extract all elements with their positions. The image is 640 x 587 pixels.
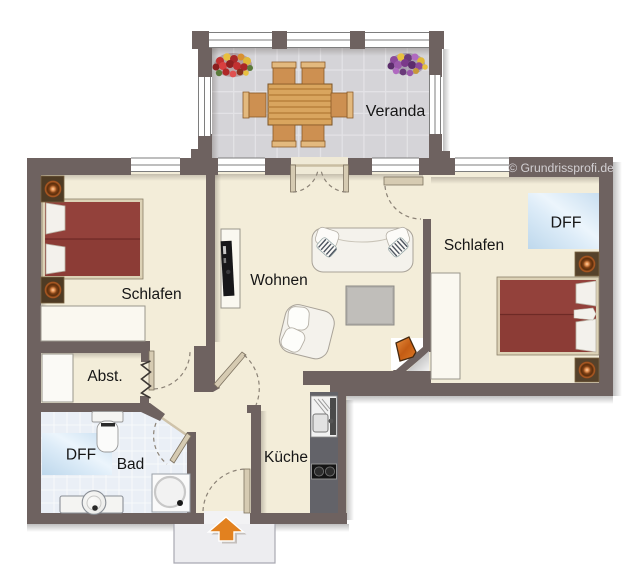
svg-text:Veranda: Veranda <box>366 103 426 120</box>
svg-text:Wohnen: Wohnen <box>250 272 307 289</box>
svg-text:Küche: Küche <box>264 449 308 466</box>
svg-text:© Grundrissprofi.de: © Grundrissprofi.de <box>508 161 614 175</box>
svg-text:Schlafen: Schlafen <box>121 286 181 303</box>
svg-text:Abst.: Abst. <box>87 368 122 385</box>
svg-text:Schlafen: Schlafen <box>444 237 504 254</box>
svg-text:DFF: DFF <box>550 215 581 232</box>
svg-text:DFF: DFF <box>66 447 96 464</box>
svg-text:Bad: Bad <box>117 456 145 473</box>
